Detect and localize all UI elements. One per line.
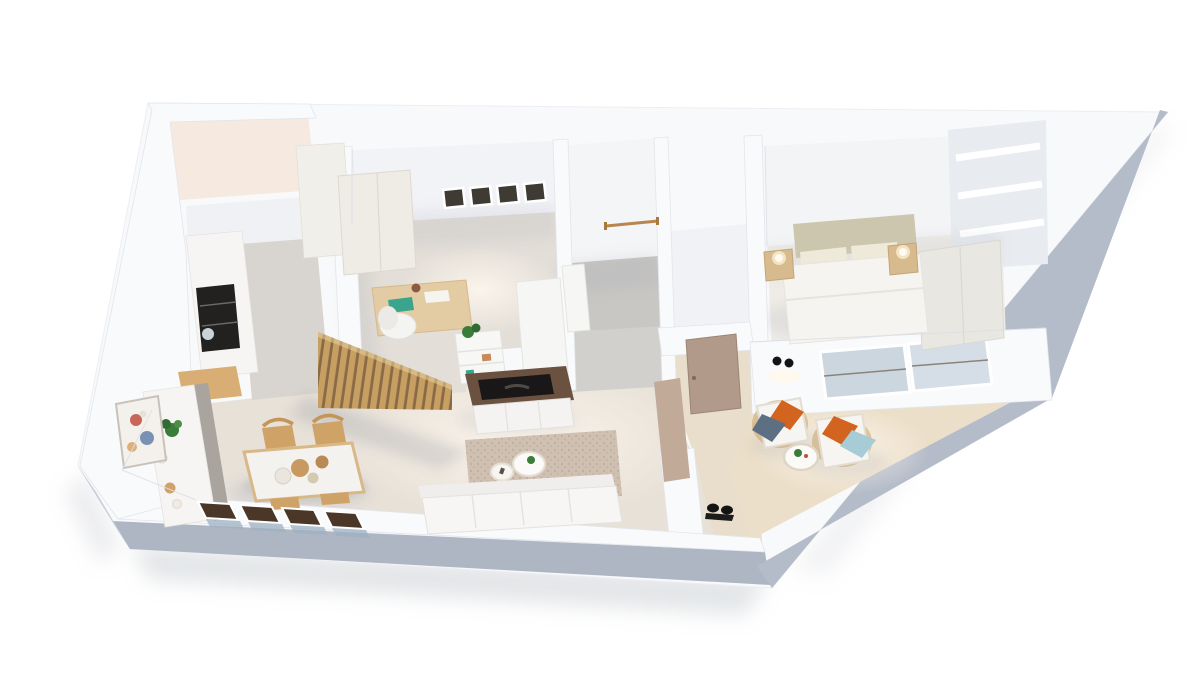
bed <box>782 214 928 344</box>
entrance-door <box>686 334 741 414</box>
tv-console <box>465 366 574 434</box>
coffee-table-large <box>513 452 545 476</box>
nightstand <box>888 243 918 275</box>
bowl <box>291 459 309 477</box>
floorplan-svg <box>0 0 1200 674</box>
table-plant <box>527 456 535 464</box>
dining-chair <box>320 492 350 505</box>
nightstand <box>764 249 794 281</box>
papers <box>424 290 450 303</box>
plate <box>275 468 291 484</box>
floorplan-render <box>0 0 1200 674</box>
desk-lamp <box>412 284 421 293</box>
terrace-table <box>784 444 818 470</box>
door-handle <box>692 376 696 380</box>
glass-vase <box>202 328 214 340</box>
oven-column <box>196 284 240 352</box>
armchair <box>752 398 808 448</box>
floor-utility <box>170 114 316 200</box>
bowl <box>308 473 319 484</box>
bowl <box>316 456 329 469</box>
